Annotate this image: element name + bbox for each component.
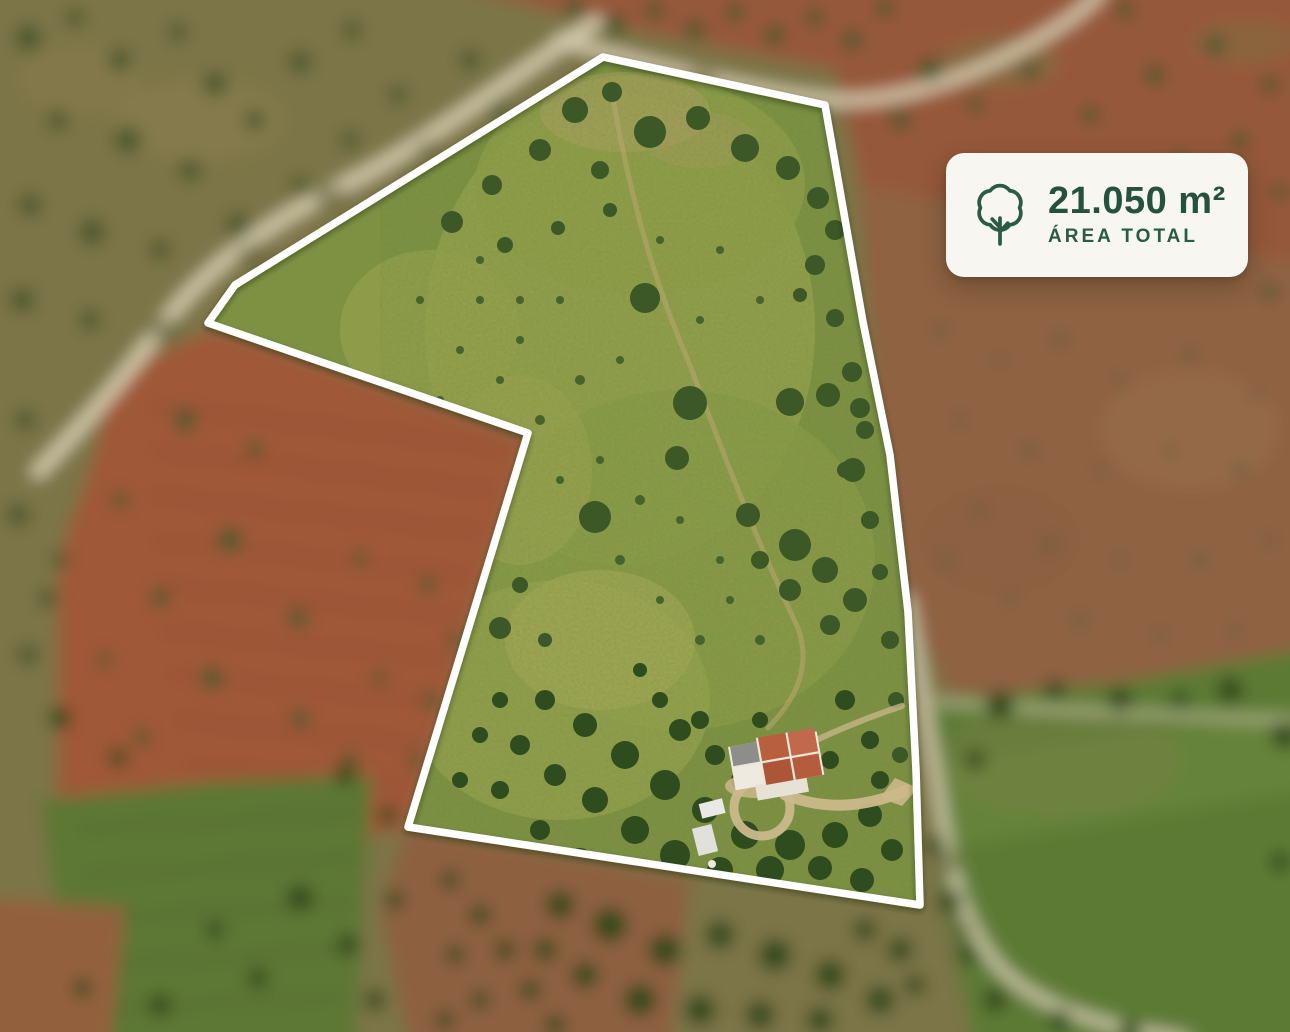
area-label: ÁREA TOTAL [1048, 226, 1226, 248]
aerial-photo: 21.050 m² ÁREA TOTAL [0, 0, 1290, 1032]
area-value: 21.050 m² [1048, 182, 1226, 222]
area-total-card: 21.050 m² ÁREA TOTAL [946, 153, 1248, 277]
area-card-text: 21.050 m² ÁREA TOTAL [1048, 182, 1226, 249]
tree-icon [972, 182, 1028, 248]
brown-strip-corner [0, 895, 125, 1032]
